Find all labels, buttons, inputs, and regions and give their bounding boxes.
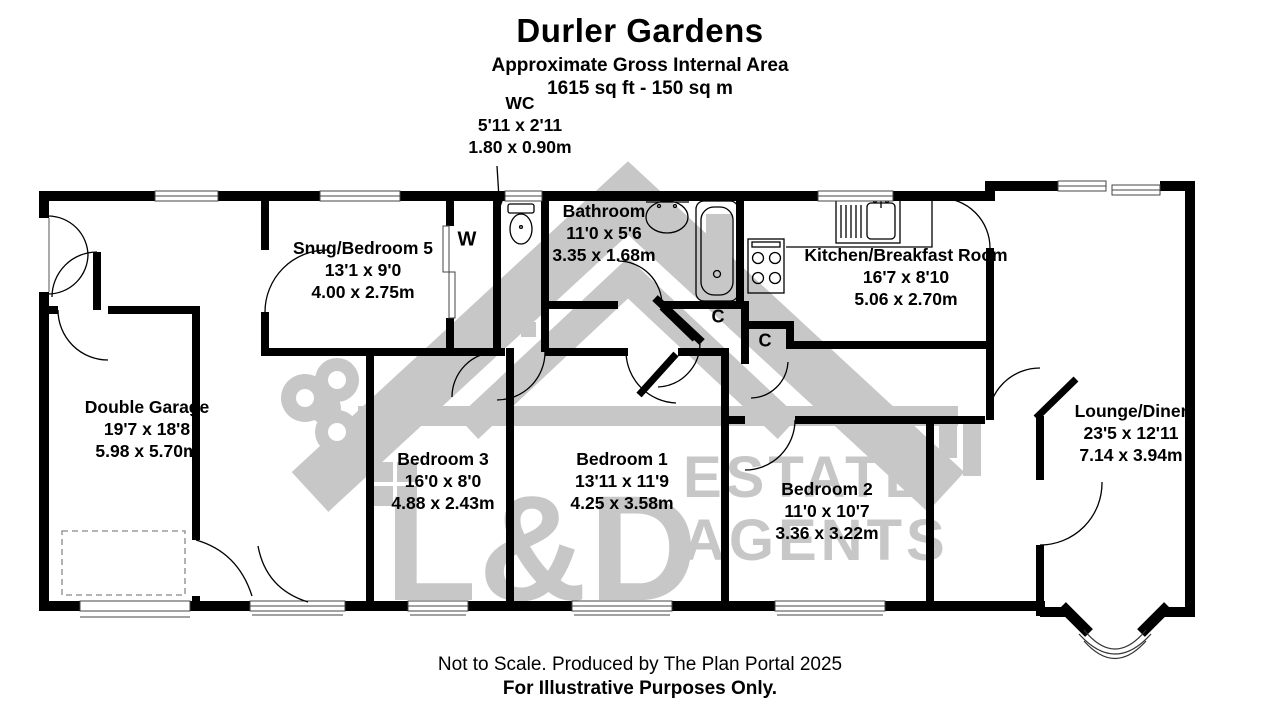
room-label-bedroom1: Bedroom 1 13'11 x 11'9 4.25 x 3.58m [570, 448, 673, 514]
toilet-icon [508, 204, 534, 244]
footer-disclaimer: Not to Scale. Produced by The Plan Porta… [438, 654, 842, 676]
bay-window [1062, 606, 1168, 659]
cupboard-marker-1: C [712, 307, 725, 328]
page-area: 1615 sq ft - 150 sq m [547, 78, 733, 100]
floorplan-page: Durler Gardens Approximate Gross Interna… [0, 0, 1280, 727]
bedroom1-door-leaf [639, 354, 676, 395]
kitchen-sink-icon [836, 199, 900, 243]
page-title: Durler Gardens [516, 12, 763, 50]
garage-door [80, 601, 190, 617]
room-label-wc: WC 5'11 x 2'11 1.80 x 0.90m [468, 92, 571, 158]
chimney-shape [706, 214, 732, 262]
footer-illustrative: For Illustrative Purposes Only. [503, 678, 777, 700]
room-label-garage: Double Garage 19'7 x 18'8 5.98 x 5.70m [85, 396, 209, 462]
lounge-entry-leaf [1036, 379, 1076, 418]
kitchen-door-arc [940, 198, 990, 248]
room-label-lounge: Lounge/Diner 23'5 x 12'11 7.14 x 3.94m [1075, 400, 1188, 466]
garage-door-arc [58, 310, 108, 360]
room-label-kitchen: Kitchen/Breakfast Room 16'7 x 8'10 5.06 … [804, 244, 1007, 310]
garage-dashed-outline [62, 531, 185, 595]
floorplan-drawing: L&D ESTATE AGENTS [0, 0, 1280, 727]
lobby-door-arc [52, 252, 97, 297]
room-label-bedroom2: Bedroom 2 11'0 x 10'7 3.36 x 3.22m [775, 478, 878, 544]
wardrobe-marker: W [458, 229, 477, 252]
room-label-bathroom: Bathroom 11'0 x 5'6 3.35 x 1.68m [552, 200, 655, 266]
kitchen-counter [786, 201, 932, 247]
room-label-snug: Snug/Bedroom 5 13'1 x 9'0 4.00 x 2.75m [293, 237, 433, 303]
sliding-door [443, 226, 455, 318]
lounge-side-door-arc [1040, 482, 1102, 545]
corridor-door-arcs [196, 540, 308, 602]
lounge-entry-arc [988, 368, 1040, 420]
cupboard-marker-2: C [759, 331, 772, 352]
page-subtitle: Approximate Gross Internal Area [491, 55, 788, 77]
room-label-bedroom3: Bedroom 3 16'0 x 8'0 4.88 x 2.43m [391, 448, 494, 514]
